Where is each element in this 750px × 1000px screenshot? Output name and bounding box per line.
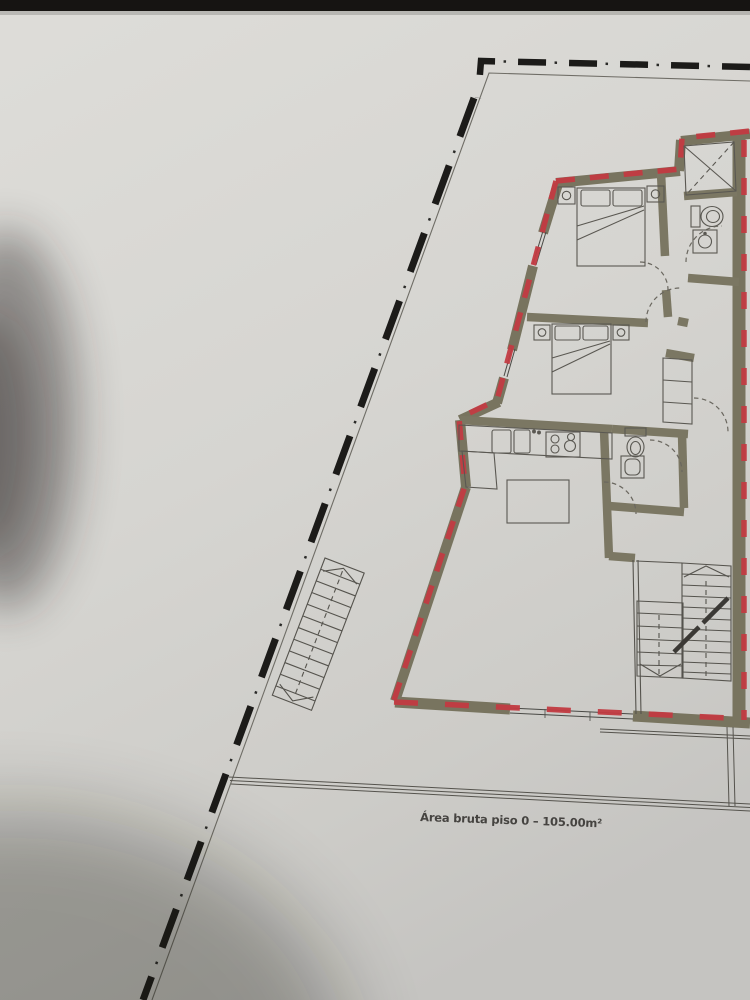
floor-plan-photo: Área bruta piso 0 – 105.00m² <box>0 0 750 1000</box>
faucet-dot <box>704 232 706 234</box>
faucet-dot <box>533 430 536 433</box>
floor-plan-canvas: Área bruta piso 0 – 105.00m² <box>0 0 750 1000</box>
faucet-dot <box>538 431 541 434</box>
photo-top-dark-band <box>0 0 750 11</box>
